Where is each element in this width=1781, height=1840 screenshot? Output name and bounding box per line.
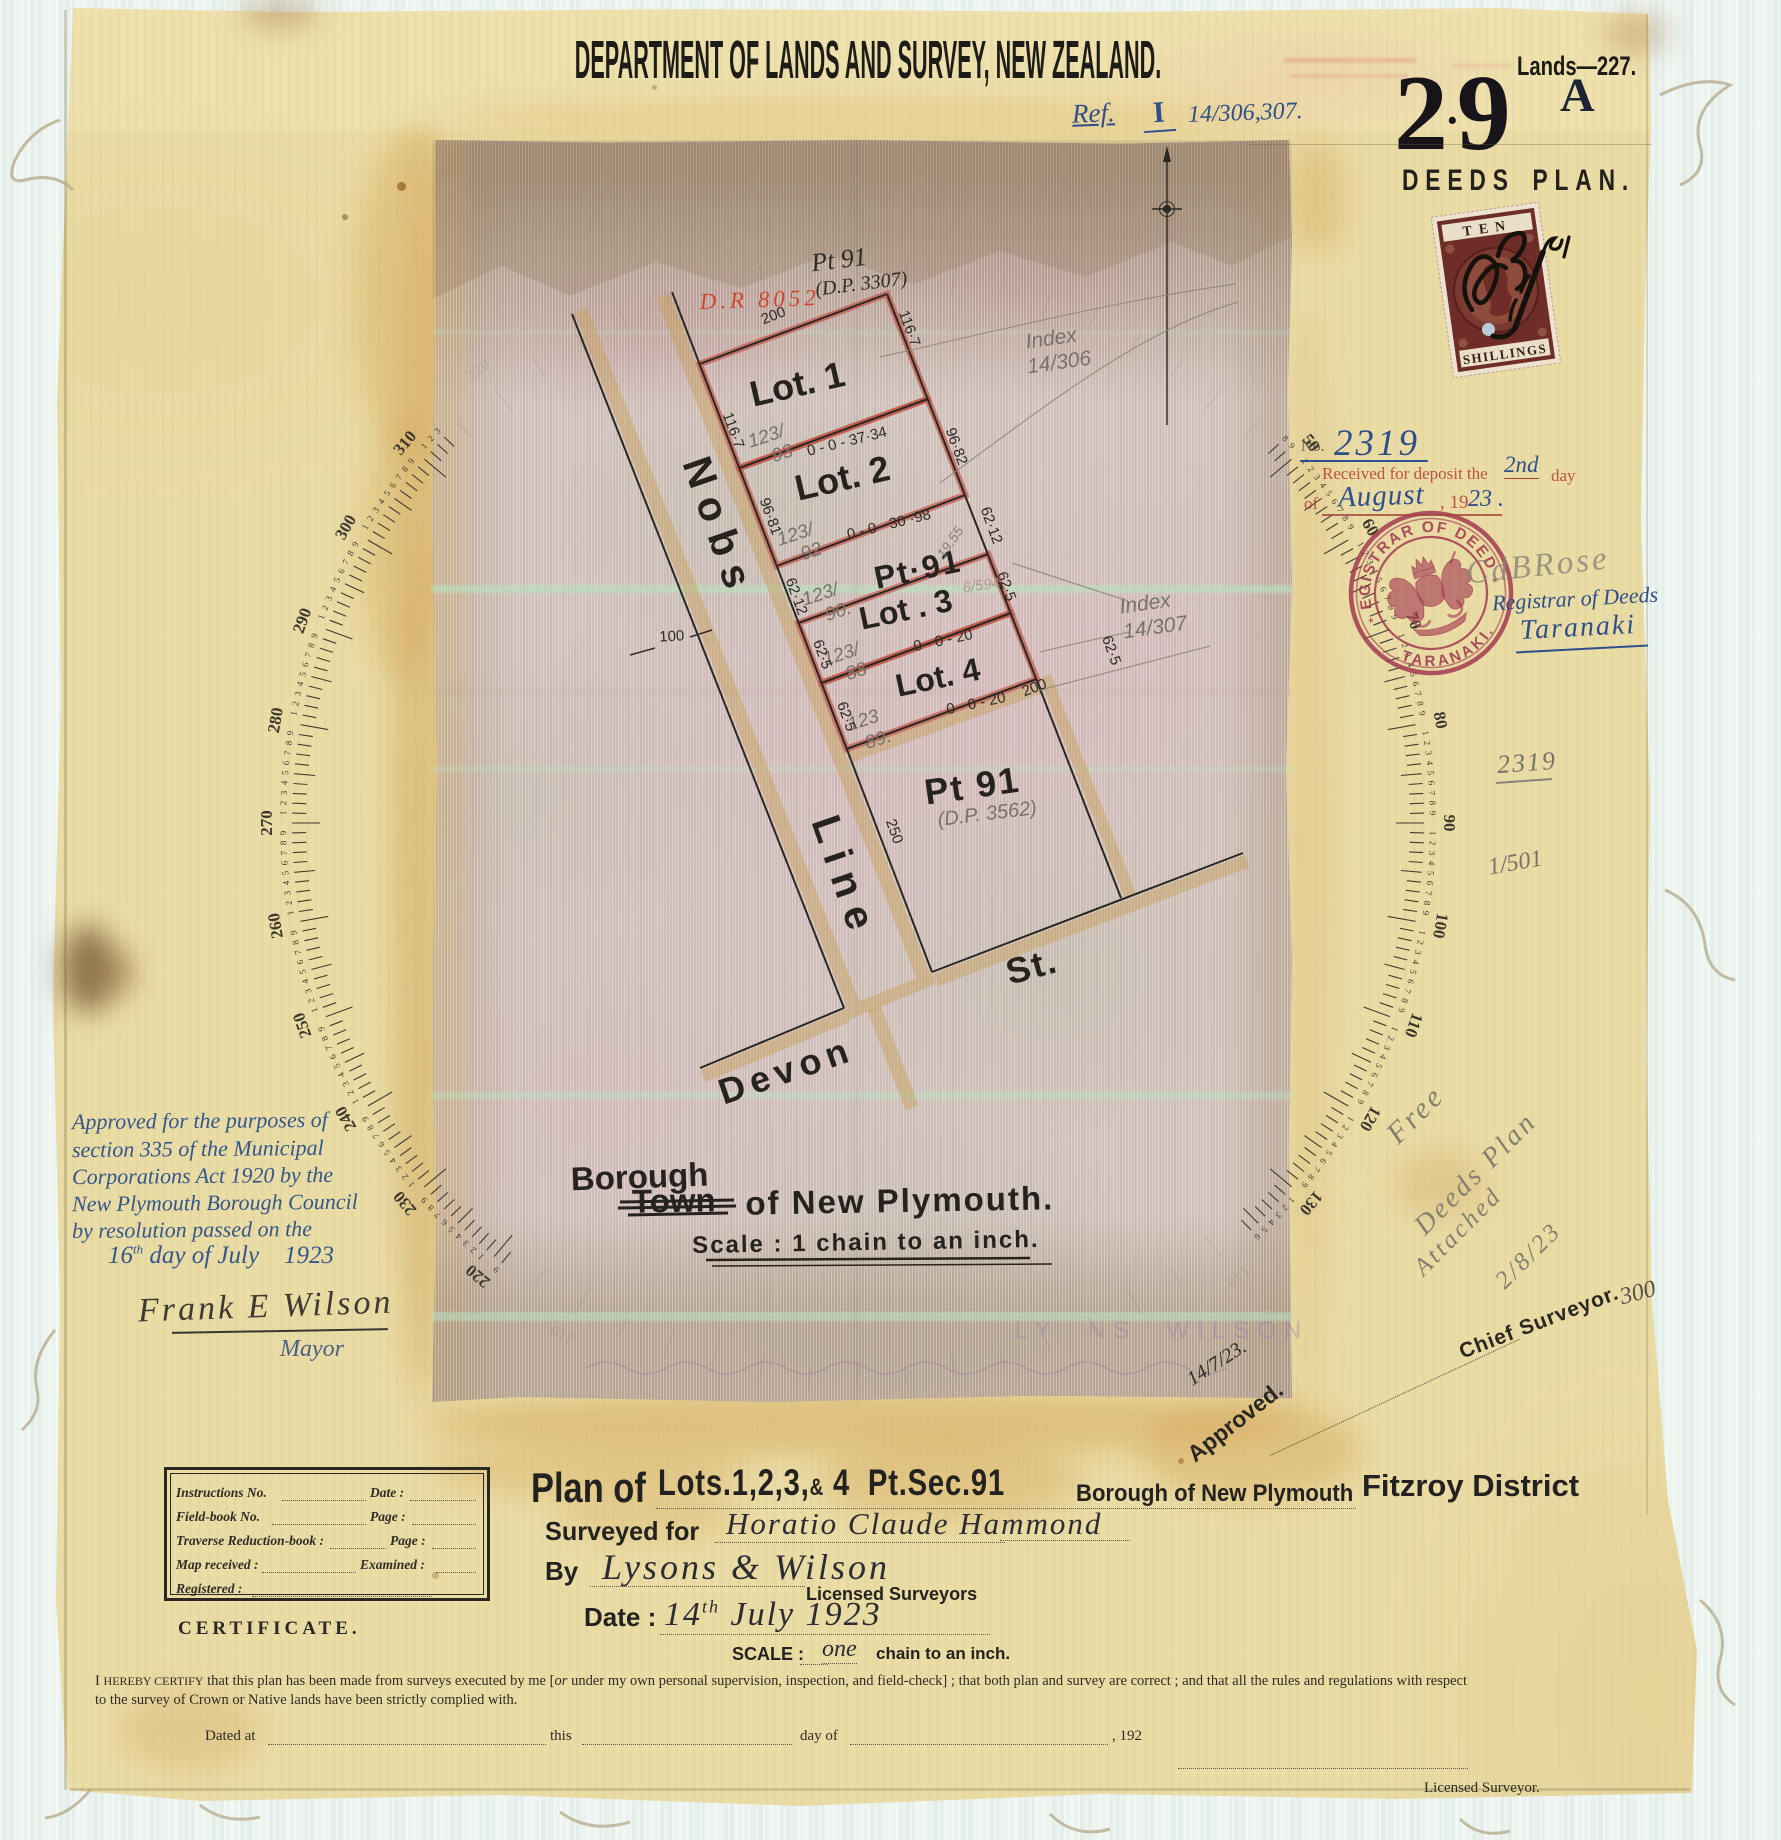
svg-text:4: 4 [300,977,311,985]
svg-text:2: 2 [1428,841,1438,846]
svg-text:2: 2 [278,801,288,806]
svg-text:1: 1 [419,441,429,451]
svg-text:4: 4 [1378,1053,1389,1062]
svg-text:2: 2 [425,433,435,443]
svg-text:5: 5 [297,968,308,975]
svg-text:5: 5 [297,670,308,677]
svg-text:9: 9 [278,830,288,835]
svg-text:5: 5 [280,770,290,776]
svg-text:4: 4 [279,780,289,786]
svg-text:1: 1 [406,1180,417,1190]
svg-text:8: 8 [1415,700,1426,707]
svg-text:5: 5 [280,870,290,876]
svg-text:6: 6 [279,860,289,866]
svg-text:3: 3 [1413,949,1424,956]
svg-text:1: 1 [1417,930,1428,936]
svg-text:9: 9 [288,929,299,936]
svg-text:62·12: 62·12 [977,505,1006,547]
svg-text:6: 6 [281,760,291,766]
svg-text:8: 8 [345,548,356,557]
svg-text:7: 7 [292,949,303,956]
svg-text:6: 6 [1369,1071,1380,1080]
svg-text:320: 320 [462,354,494,385]
svg-text:2: 2 [468,1245,478,1255]
svg-text:9: 9 [1396,1006,1407,1014]
svg-text:6: 6 [1317,1156,1328,1166]
svg-text:7: 7 [303,651,314,659]
svg-text:8: 8 [319,1034,330,1042]
svg-text:9: 9 [1287,441,1298,451]
svg-text:7: 7 [282,750,293,756]
svg-text:6: 6 [1426,780,1436,786]
svg-text:3: 3 [303,987,314,995]
svg-text:9: 9 [309,632,320,640]
svg-text:2: 2 [1422,740,1433,746]
svg-text:5: 5 [381,1148,392,1158]
svg-text:110: 110 [1401,1011,1427,1041]
svg-text:8: 8 [290,939,301,946]
svg-text:4: 4 [1410,959,1421,966]
svg-text:Lot . 3: Lot . 3 [856,582,956,637]
svg-text:2: 2 [283,900,294,906]
svg-text:7: 7 [1365,1080,1376,1089]
svg-text:8: 8 [1360,1089,1371,1098]
svg-text:220: 220 [462,1261,494,1292]
svg-text:6: 6 [1405,978,1416,986]
svg-text:1: 1 [309,1006,320,1014]
svg-text:5: 5 [331,1061,342,1070]
svg-text:9: 9 [1299,1180,1310,1190]
svg-text:8: 8 [1280,433,1291,443]
svg-text:8: 8 [1428,801,1438,806]
svg-text:3: 3 [340,1079,351,1088]
svg-text:2: 2 [1386,1034,1397,1042]
svg-text:7: 7 [1312,1164,1323,1174]
svg-text:230: 230 [389,1187,420,1219]
svg-text:Scale : 1 chain to an inch.: Scale : 1 chain to an inch. [692,1226,1040,1259]
svg-text:*: * [1367,614,1376,630]
svg-text:3: 3 [279,790,289,796]
svg-text:4: 4 [376,496,387,506]
svg-text:6: 6 [336,566,347,575]
svg-text:3: 3 [370,505,381,515]
svg-text:8: 8 [306,641,317,649]
svg-text:270: 270 [257,810,276,836]
svg-text:1: 1 [360,522,371,531]
svg-text:7: 7 [1402,987,1413,995]
svg-text:7: 7 [394,472,405,482]
svg-text:4: 4 [1329,1140,1340,1150]
svg-text:310: 310 [389,427,420,459]
svg-text:120: 120 [1356,1103,1385,1135]
svg-text:2: 2 [365,514,376,523]
svg-text:100: 100 [659,627,685,645]
svg-text:1: 1 [278,811,288,816]
svg-text:1: 1 [288,710,299,716]
svg-text:9: 9 [359,1114,370,1123]
svg-text:6: 6 [1252,1231,1263,1242]
svg-text:9: 9 [491,1264,501,1275]
svg-text:130: 130 [1296,1187,1327,1219]
svg-text:260: 260 [264,912,287,940]
svg-text:60: 60 [1358,515,1383,539]
svg-text:8: 8 [400,464,411,474]
svg-text:3: 3 [460,1238,470,1249]
svg-text:9: 9 [406,456,417,466]
svg-text:9: 9 [285,730,296,737]
svg-text:19.55: 19.55 [933,523,966,561]
svg-text:5: 5 [1259,1224,1270,1235]
svg-text:6: 6 [300,661,311,669]
svg-text:4: 4 [336,1070,347,1079]
svg-text:7: 7 [1423,890,1434,896]
svg-text:3: 3 [1427,851,1437,857]
svg-text:5: 5 [1426,870,1436,876]
svg-text:8: 8 [365,1123,376,1133]
svg-text:1: 1 [1345,1115,1356,1124]
svg-text:7: 7 [1427,790,1437,796]
svg-text:62·5: 62·5 [1098,633,1124,667]
svg-text:3: 3 [1334,1132,1345,1142]
svg-text:1: 1 [476,1252,486,1262]
svg-text:9: 9 [1428,811,1438,816]
svg-text:4: 4 [453,1231,464,1242]
svg-text:LY NS WILSON: LY NS WILSON [1015,1317,1309,1344]
svg-text:4: 4 [1425,760,1435,766]
svg-text:9: 9 [419,1195,430,1205]
svg-text:300: 300 [331,511,360,543]
svg-text:5: 5 [1373,1062,1384,1071]
svg-text:of New Plymouth.: of New Plymouth. [745,1179,1054,1221]
svg-text:8: 8 [425,1202,436,1212]
svg-text:7: 7 [279,850,289,856]
svg-text:4: 4 [1266,1217,1277,1228]
svg-text:3: 3 [292,690,303,697]
svg-text:1: 1 [1428,831,1438,836]
svg-text:90: 90 [1440,815,1459,832]
svg-text:3: 3 [1382,1044,1393,1053]
svg-text:2: 2 [1415,939,1426,945]
svg-text:6: 6 [439,1217,450,1228]
svg-text:7: 7 [340,557,351,566]
svg-text:1: 1 [1287,1195,1297,1205]
svg-text:280: 280 [264,706,287,734]
svg-text:2: 2 [290,700,301,706]
svg-text:4: 4 [1426,860,1436,866]
svg-text:0 - 0 - 30 ·98: 0 - 0 - 30 ·98 [845,506,932,543]
svg-text:Lot. 2: Lot. 2 [791,447,894,509]
svg-text:3: 3 [323,594,334,603]
svg-text:9: 9 [1355,1097,1366,1106]
svg-text:7: 7 [323,1043,334,1052]
svg-text:8: 8 [1422,900,1433,906]
svg-text:2: 2 [400,1172,411,1182]
svg-text:6: 6 [295,958,306,965]
svg-text:2: 2 [1306,464,1317,474]
svg-text:3: 3 [1273,1210,1284,1220]
svg-text:6: 6 [387,480,398,490]
svg-text:9: 9 [350,539,361,548]
svg-text:7: 7 [432,1210,443,1220]
svg-text:4: 4 [327,585,338,594]
svg-text:3: 3 [282,890,293,896]
svg-text:7: 7 [370,1131,381,1141]
svg-text:1: 1 [316,613,327,621]
svg-text:9: 9 [1420,910,1431,917]
svg-text:140: 140 [1222,1261,1254,1292]
svg-text:2: 2 [306,997,317,1004]
svg-text:5: 5 [331,575,342,584]
svg-text:250: 250 [882,817,907,846]
svg-text:P⁢t 91: P⁢t 91 [809,242,869,278]
svg-text:2: 2 [1280,1203,1290,1213]
svg-text:1: 1 [350,1097,361,1106]
svg-text:250: 250 [289,1010,316,1040]
svg-text:6: 6 [327,1052,338,1061]
svg-text:2: 2 [345,1089,356,1098]
svg-text:9: 9 [316,1025,327,1033]
svg-text:8: 8 [1399,997,1410,1005]
svg-text:3: 3 [432,425,443,435]
svg-text:8: 8 [283,740,294,746]
svg-text:6: 6 [1425,880,1435,886]
svg-text:1: 1 [1421,730,1432,736]
svg-text:4: 4 [281,880,291,886]
svg-text:5: 5 [1324,489,1335,499]
svg-text:0 - 0 - 20: 0 - 0 - 20 [912,626,974,655]
svg-text:1: 1 [285,910,296,916]
svg-text:6: 6 [1410,680,1421,687]
svg-text:9: 9 [1417,710,1428,717]
svg-text:80: 80 [1430,710,1452,730]
svg-text:9: 9 [1345,522,1356,531]
svg-text:7: 7 [1413,690,1424,697]
svg-text:3: 3 [393,1164,404,1174]
svg-text:5: 5 [1323,1148,1334,1158]
svg-text:5: 5 [1426,770,1436,776]
svg-text:5: 5 [382,488,393,498]
svg-text:Lot. 1: Lot. 1 [746,353,849,415]
svg-text:2: 2 [1340,1123,1351,1132]
svg-text:5: 5 [1408,968,1419,975]
svg-text:100: 100 [1429,912,1452,940]
svg-text:5: 5 [446,1224,457,1235]
svg-text:6: 6 [376,1139,387,1149]
svg-text:1: 1 [1389,1025,1400,1033]
svg-text:290: 290 [289,605,316,635]
svg-text:3: 3 [1423,750,1434,756]
svg-text:8: 8 [1305,1172,1316,1182]
svg-text:240: 240 [331,1103,360,1135]
svg-text:D.R 8052: D.R 8052 [698,285,820,314]
svg-text:210: 210 [546,1321,578,1350]
svg-text:2: 2 [319,604,330,612]
svg-text:8: 8 [278,840,288,845]
svg-text:4: 4 [387,1156,398,1166]
svg-text:4: 4 [295,680,306,687]
svg-text:6: 6 [1378,585,1389,594]
